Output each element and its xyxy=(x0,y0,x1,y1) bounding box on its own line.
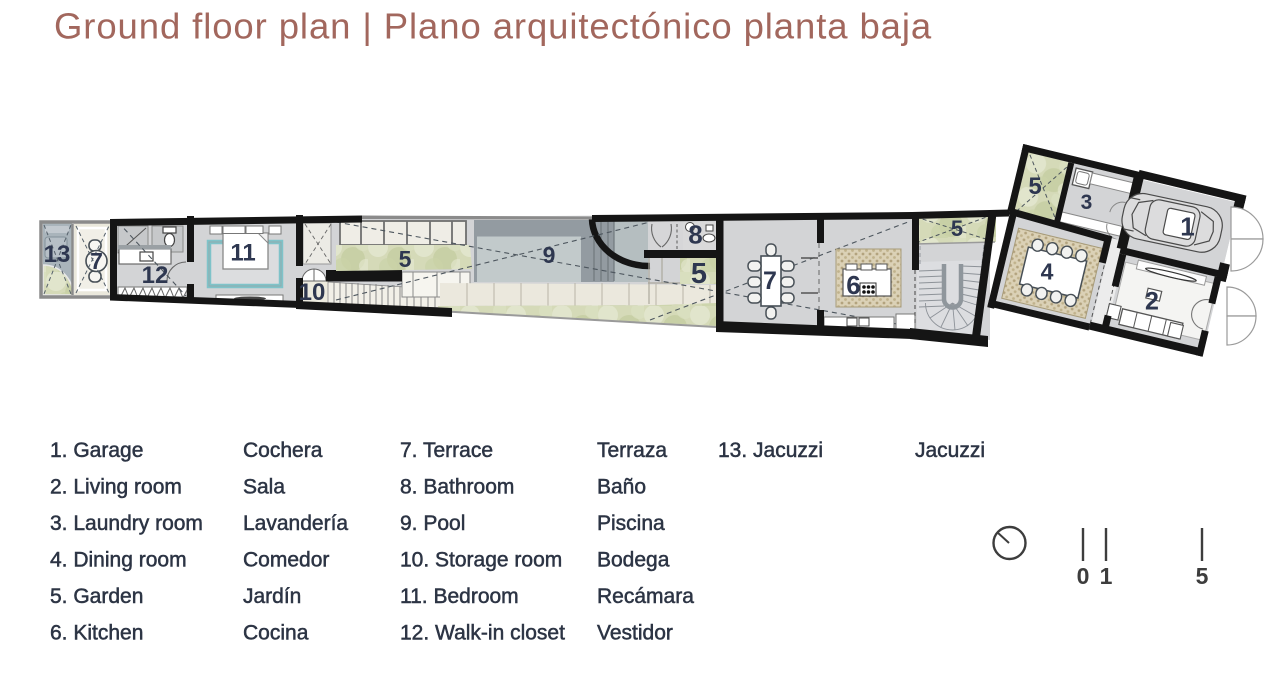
svg-text:Cocina: Cocina xyxy=(243,622,309,645)
svg-text:Comedor: Comedor xyxy=(243,549,329,572)
svg-text:Piscina: Piscina xyxy=(597,512,665,535)
svg-text:5: 5 xyxy=(691,258,707,290)
svg-text:5: 5 xyxy=(1028,173,1041,200)
svg-text:1: 1 xyxy=(1180,212,1194,242)
svg-text:2: 2 xyxy=(1145,288,1159,316)
svg-text:1. Garage: 1. Garage xyxy=(50,439,143,462)
svg-text:2. Living room: 2. Living room xyxy=(50,476,182,499)
svg-text:5: 5 xyxy=(399,246,412,272)
svg-text:Cochera: Cochera xyxy=(243,439,323,462)
svg-text:9: 9 xyxy=(543,242,556,268)
svg-text:Bodega: Bodega xyxy=(597,549,670,572)
svg-text:12: 12 xyxy=(142,262,169,289)
svg-text:Lavandería: Lavandería xyxy=(243,512,348,535)
svg-text:Jardín: Jardín xyxy=(243,585,301,608)
svg-text:12. Walk-in closet: 12. Walk-in closet xyxy=(400,622,565,645)
svg-text:7: 7 xyxy=(90,248,103,274)
svg-text:7: 7 xyxy=(763,267,777,295)
svg-text:1: 1 xyxy=(1100,563,1113,589)
svg-text:13: 13 xyxy=(44,241,71,268)
svg-text:10. Storage room: 10. Storage room xyxy=(400,549,562,572)
svg-text:Ground floor plan | Plano arqu: Ground floor plan | Plano arquitectónico… xyxy=(54,6,932,47)
svg-text:5. Garden: 5. Garden xyxy=(50,585,143,608)
svg-text:3: 3 xyxy=(1081,191,1093,214)
svg-text:10: 10 xyxy=(299,279,326,306)
svg-text:4: 4 xyxy=(1041,259,1054,285)
svg-text:7. Terrace: 7. Terrace xyxy=(400,439,493,462)
svg-text:6. Kitchen: 6. Kitchen xyxy=(50,622,143,645)
svg-text:4. Dining room: 4. Dining room xyxy=(50,549,187,572)
svg-text:13. Jacuzzi: 13. Jacuzzi xyxy=(718,439,823,462)
svg-text:Recámara: Recámara xyxy=(597,585,694,608)
svg-text:11. Bedroom: 11. Bedroom xyxy=(400,585,519,608)
svg-text:9. Pool: 9. Pool xyxy=(400,512,465,535)
svg-text:8: 8 xyxy=(688,220,702,250)
svg-text:Terraza: Terraza xyxy=(597,439,667,462)
svg-text:Baño: Baño xyxy=(597,476,646,499)
svg-text:5: 5 xyxy=(1196,563,1209,589)
svg-text:Sala: Sala xyxy=(243,476,285,499)
svg-text:6: 6 xyxy=(846,270,860,300)
svg-text:0: 0 xyxy=(1077,563,1090,589)
svg-text:5: 5 xyxy=(951,216,963,241)
svg-text:3. Laundry room: 3. Laundry room xyxy=(50,512,203,535)
svg-text:11: 11 xyxy=(230,240,255,267)
svg-text:Jacuzzi: Jacuzzi xyxy=(915,439,985,462)
svg-text:Vestidor: Vestidor xyxy=(597,622,673,645)
svg-text:8. Bathroom: 8. Bathroom xyxy=(400,476,514,499)
